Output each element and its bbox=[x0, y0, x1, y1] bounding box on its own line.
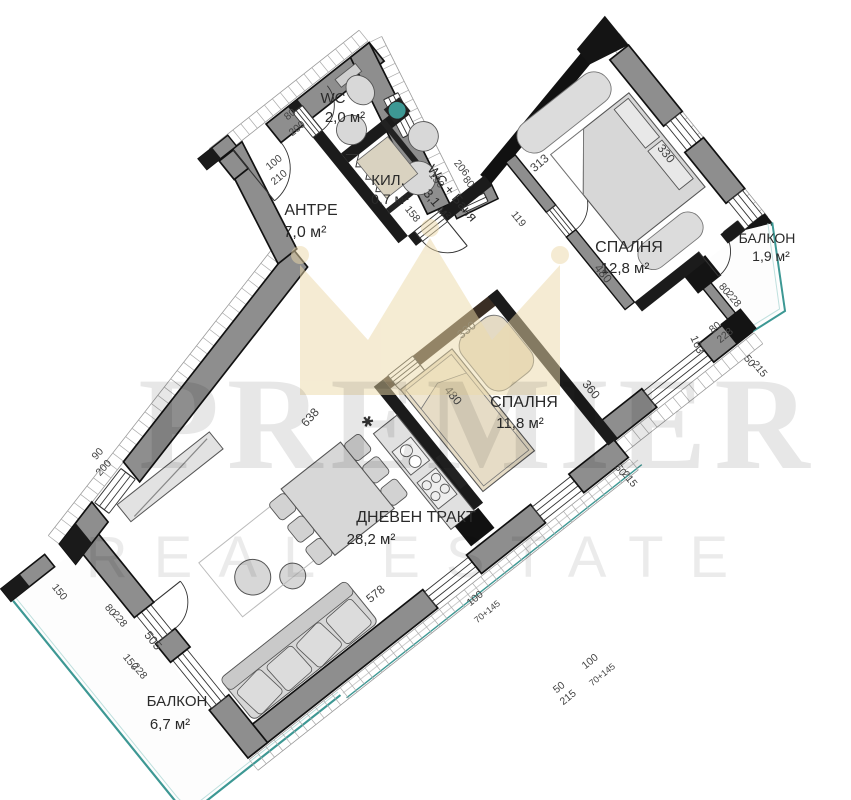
svg-text:0,7 м²: 0,7 м² bbox=[371, 191, 409, 207]
svg-text:КИЛ.: КИЛ. bbox=[371, 172, 405, 189]
svg-text:WC: WC bbox=[321, 90, 346, 107]
svg-text:СПАЛНЯ: СПАЛНЯ bbox=[595, 239, 663, 256]
svg-text:1,9 м²: 1,9 м² bbox=[752, 248, 790, 264]
svg-text:БАЛКОН: БАЛКОН bbox=[147, 693, 208, 710]
svg-text:REAL ESTATE: REAL ESTATE bbox=[86, 525, 754, 590]
svg-text:2,0 м²: 2,0 м² bbox=[325, 109, 365, 126]
svg-text:6,7 м²: 6,7 м² bbox=[150, 716, 190, 733]
svg-text:PREMIER: PREMIER bbox=[138, 350, 817, 497]
svg-text:БАЛКОН: БАЛКОН bbox=[739, 230, 796, 246]
svg-text:7,0 м²: 7,0 м² bbox=[283, 224, 327, 241]
svg-text:АНТРЕ: АНТРЕ bbox=[284, 202, 337, 219]
svg-text:ДНЕВЕН ТРАКТ: ДНЕВЕН ТРАКТ bbox=[356, 509, 476, 526]
